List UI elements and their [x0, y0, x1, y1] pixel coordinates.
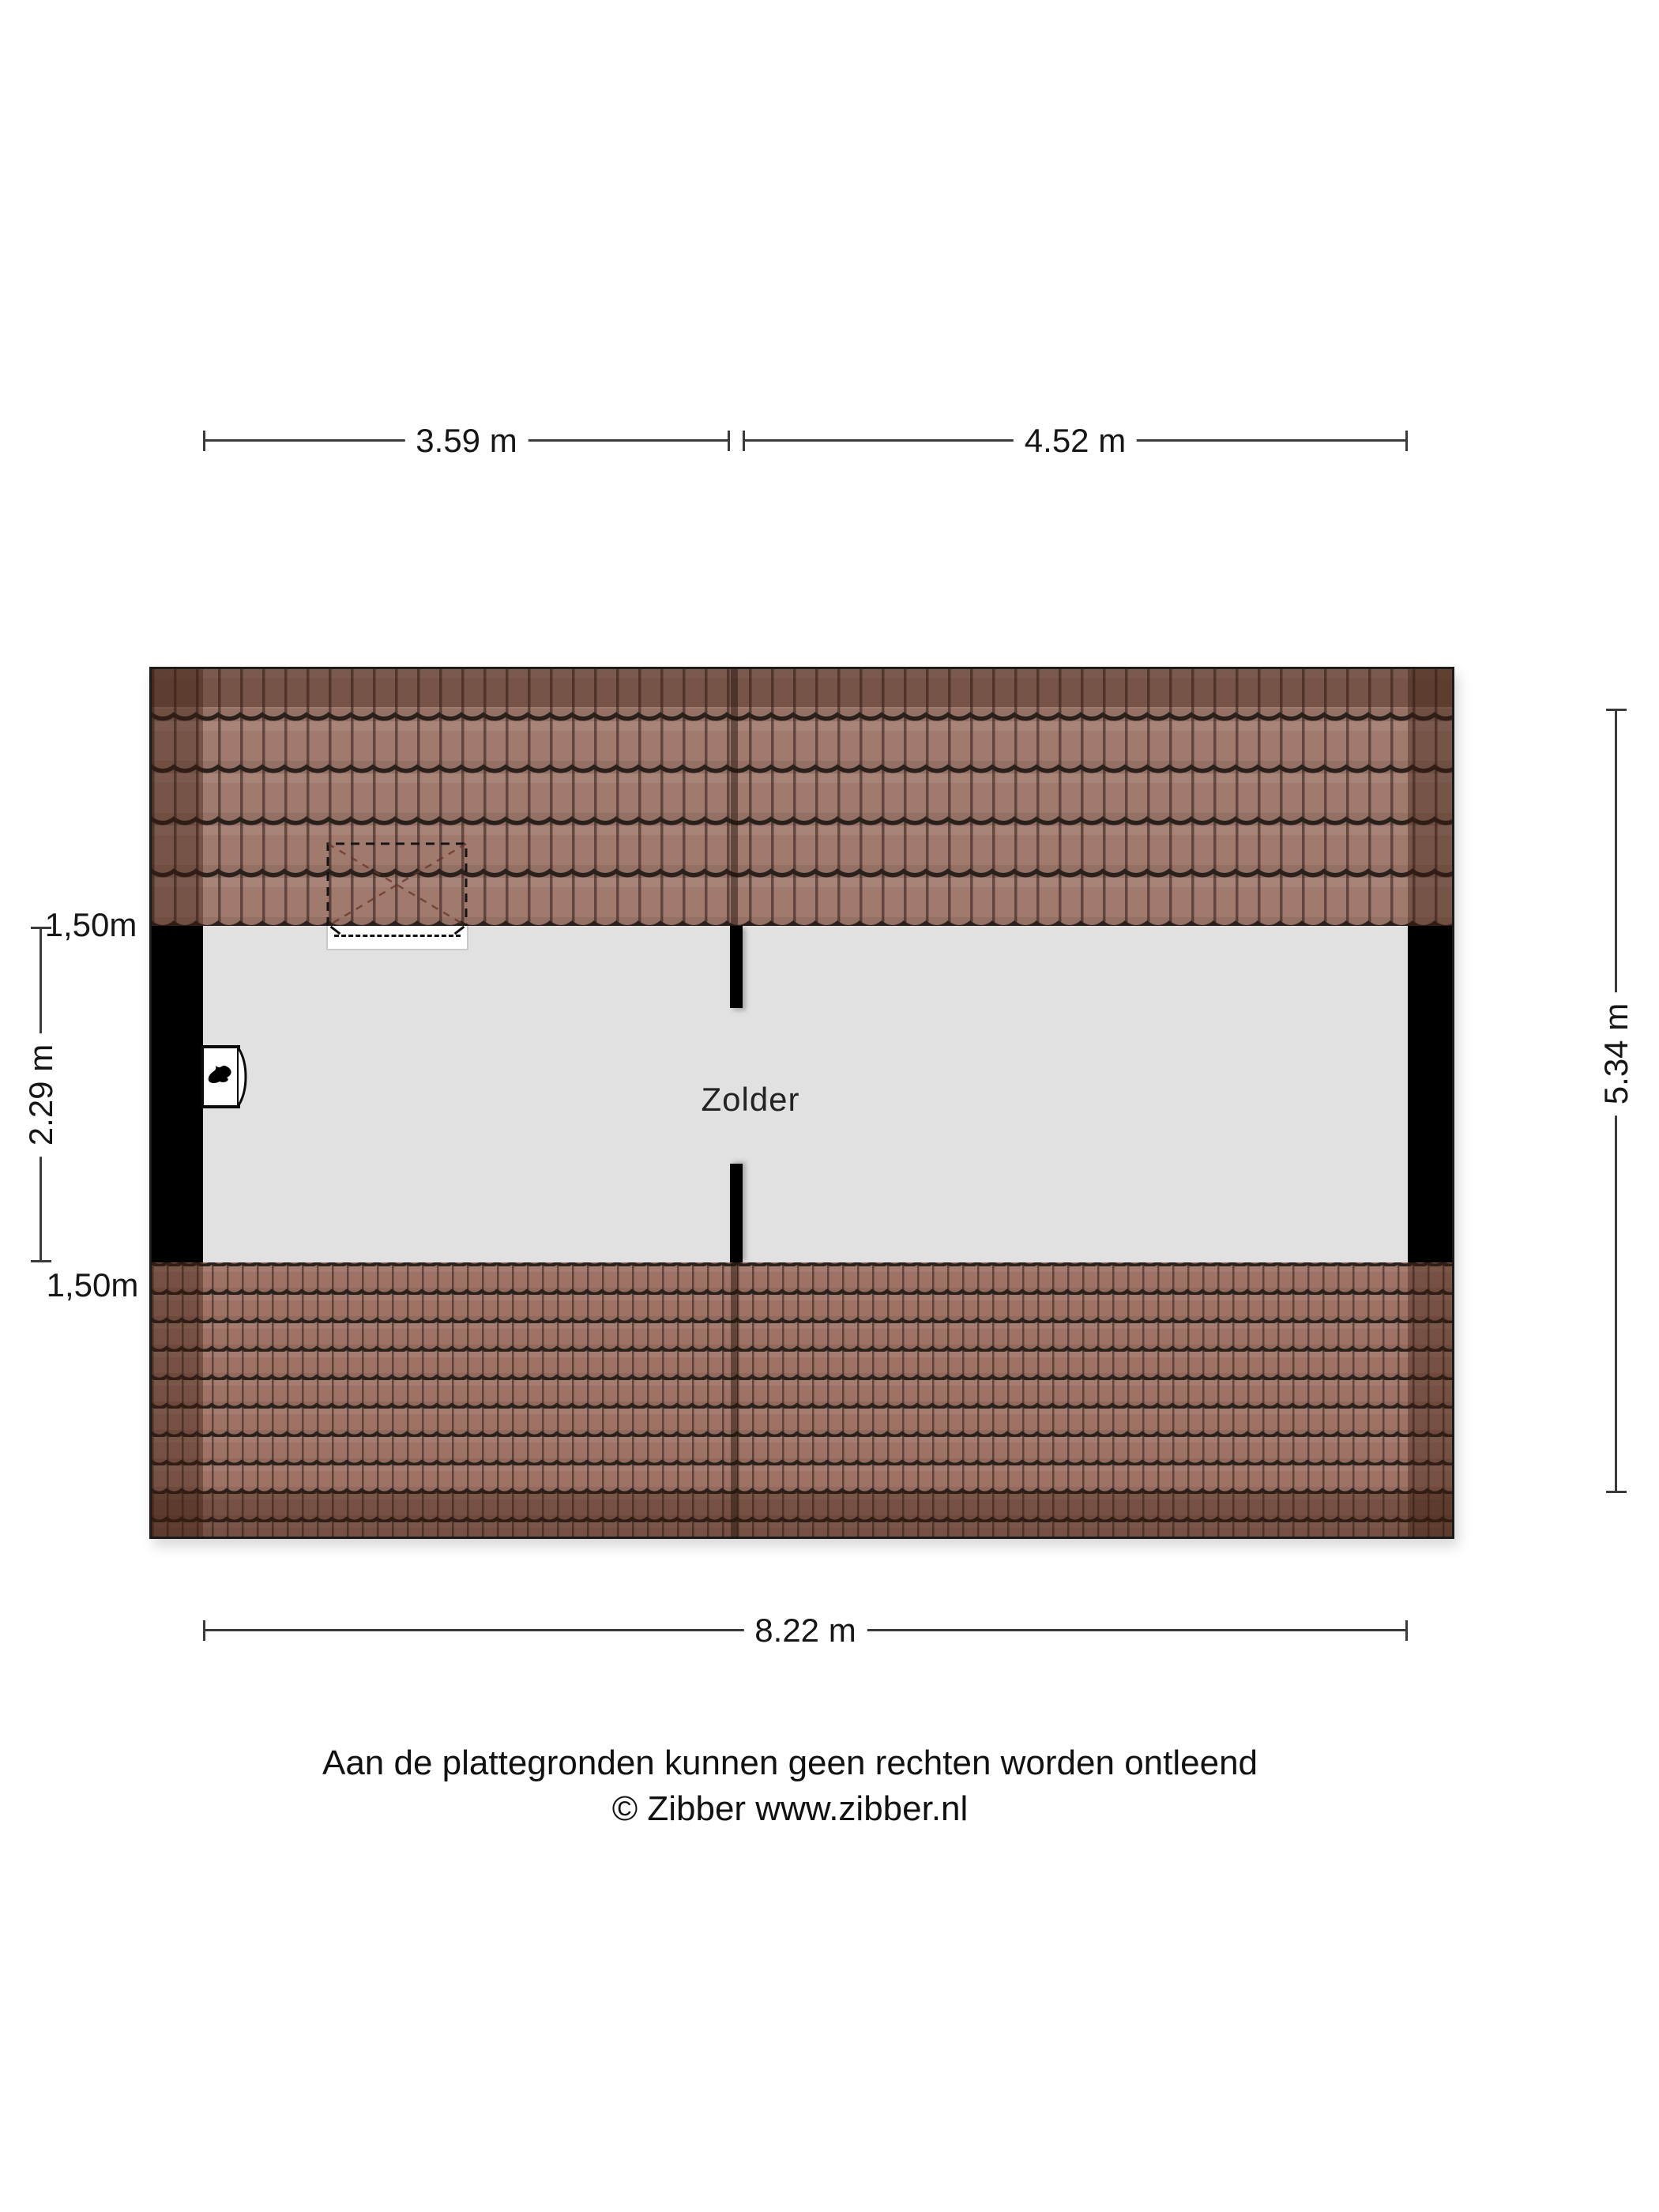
- wall-stub-top: [730, 926, 743, 1008]
- roof-seam-top: [731, 669, 738, 926]
- wall-right: [1408, 926, 1452, 1262]
- dimension-tick: [203, 1620, 205, 1641]
- dimension-tick: [31, 927, 51, 929]
- dimension-tick: [728, 431, 730, 451]
- dimension-top-right: 4.52 m: [743, 431, 1408, 451]
- skylight-dash-end: [454, 926, 465, 935]
- floorplan-page: 3.59 m 4.52 m 1,50m 2.29 m 1,50m 5.34 m: [0, 0, 1659, 2212]
- skylight-dash-end: [330, 926, 341, 935]
- dimension-right: 5.34 m: [1606, 709, 1627, 1493]
- wall-left: [152, 926, 203, 1262]
- roof-band-top: [152, 669, 1452, 926]
- skylight-sill: [326, 926, 468, 950]
- boiler-icon: [201, 1044, 251, 1109]
- dimension-bottom: 8.22 m: [203, 1620, 1408, 1641]
- disclaimer-text: Aan de plattegronden kunnen geen rechten…: [0, 1744, 1580, 1782]
- dimension-label-total-depth: 5.34 m: [1598, 992, 1635, 1115]
- dimension-tick: [1405, 431, 1408, 451]
- dimension-label-top-right: 4.52 m: [1014, 423, 1137, 459]
- dimension-tick: [1405, 1620, 1408, 1641]
- dimension-tick: [1606, 1491, 1627, 1493]
- dimension-tick: [203, 431, 205, 451]
- dimension-tick: [1606, 709, 1627, 711]
- attic-room: Zolder: [152, 926, 1452, 1262]
- dimension-top-left: 3.59 m: [203, 431, 730, 451]
- copyright-text: © Zibber www.zibber.nl: [0, 1790, 1580, 1828]
- dimension-left: 2.29 m: [31, 927, 51, 1262]
- dimension-label-slope-bottom: 1,50m: [33, 1269, 152, 1302]
- skylight-opening-dash: [334, 935, 461, 937]
- dimension-tick: [743, 431, 745, 451]
- dimension-label-interior-depth: 2.29 m: [23, 1033, 59, 1156]
- dimension-label-top-left: 3.59 m: [404, 423, 528, 459]
- floor-plan: Zolder: [149, 667, 1454, 1539]
- room-label: Zolder: [671, 1083, 829, 1116]
- dimension-tick: [31, 1260, 51, 1262]
- dimension-label-total-width: 8.22 m: [743, 1612, 867, 1649]
- roof-seam-bottom: [731, 1262, 738, 1537]
- wall-stub-bottom: [730, 1164, 743, 1262]
